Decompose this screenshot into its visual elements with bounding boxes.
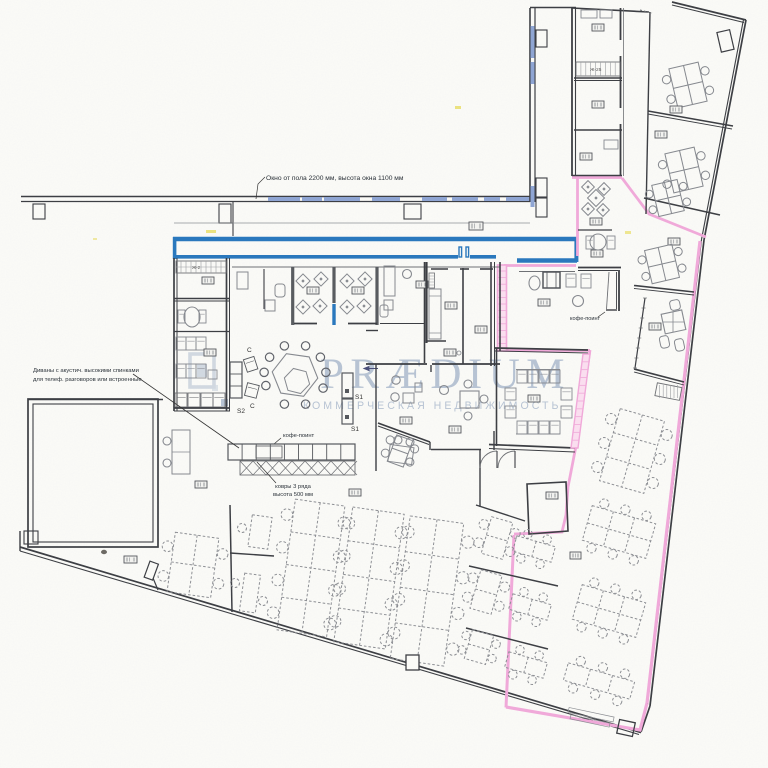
svg-text:высота 500 мм: высота 500 мм	[273, 492, 313, 498]
svg-text:для телеф. разговоров или встр: для телеф. разговоров или встроенные	[33, 377, 142, 383]
svg-text:кофе-поинт: кофе-поинт	[570, 316, 601, 322]
svg-text:ковры 3 ряда: ковры 3 ряда	[275, 484, 311, 490]
svg-text:S1: S1	[355, 394, 363, 401]
svg-text:PRÆDIUM: PRÆDIUM	[320, 351, 571, 398]
svg-text:C: C	[250, 403, 255, 410]
svg-text:Окно от пола 2200 мм, высота о: Окно от пола 2200 мм, высота окна 1100 м…	[266, 175, 404, 182]
svg-text:S1: S1	[351, 426, 359, 433]
svg-text:C: C	[247, 347, 252, 354]
svg-text:S2: S2	[237, 408, 245, 415]
svg-text:Ж-2: Ж-2	[192, 265, 201, 270]
svg-text:Диваны с акустич. высокими спи: Диваны с акустич. высокими спинками	[33, 368, 139, 374]
svg-text:Ж-25: Ж-25	[590, 67, 602, 73]
svg-text:кофе-поинт: кофе-поинт	[283, 433, 315, 439]
